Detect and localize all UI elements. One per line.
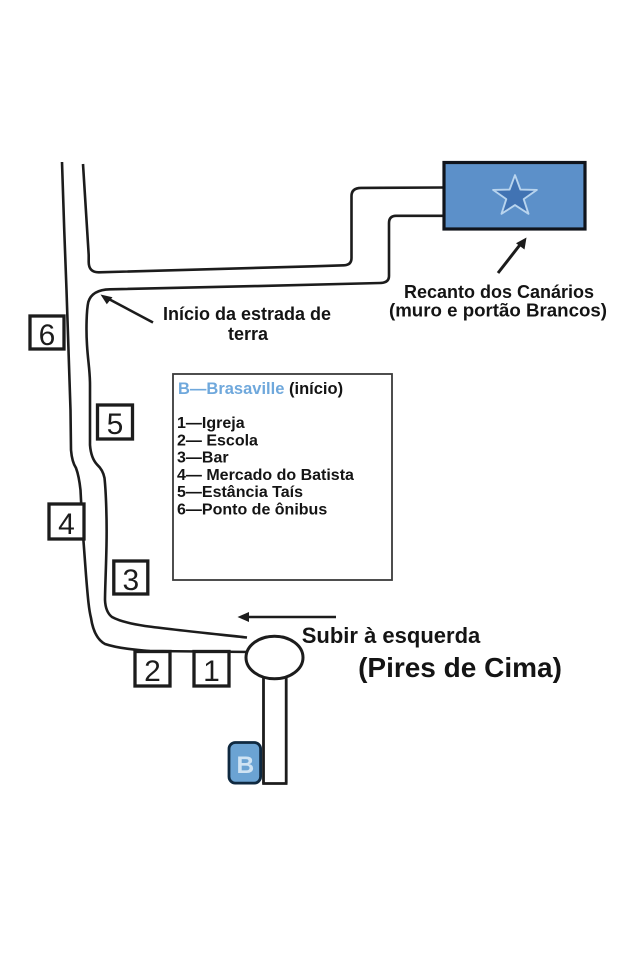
- svg-text:Início da estrada de: Início da estrada de: [163, 304, 331, 324]
- svg-text:1: 1: [203, 655, 220, 688]
- svg-text:(muro e portão Brancos): (muro e portão Brancos): [389, 300, 607, 321]
- svg-text:3: 3: [122, 564, 139, 597]
- svg-text:4— Mercado do Batista: 4— Mercado do Batista: [177, 467, 354, 484]
- svg-text:2— Escola: 2— Escola: [177, 433, 258, 450]
- svg-text:(Pires de Cima): (Pires de Cima): [358, 652, 562, 683]
- svg-text:5—Estância Taís: 5—Estância Taís: [177, 484, 303, 501]
- svg-text:6—Ponto de ônibus: 6—Ponto de ônibus: [177, 502, 327, 519]
- svg-text:3—Bar: 3—Bar: [177, 450, 229, 467]
- svg-text:Subir à esquerda: Subir à esquerda: [302, 623, 481, 648]
- svg-text:6: 6: [39, 319, 56, 352]
- svg-text:5: 5: [107, 408, 124, 441]
- svg-text:B: B: [236, 752, 254, 779]
- svg-text:1—Igreja: 1—Igreja: [177, 415, 245, 432]
- svg-text:4: 4: [58, 508, 75, 541]
- svg-text:terra: terra: [228, 324, 269, 344]
- svg-text:2: 2: [144, 655, 161, 688]
- svg-text:B—Brasaville (início): B—Brasaville (início): [178, 380, 343, 398]
